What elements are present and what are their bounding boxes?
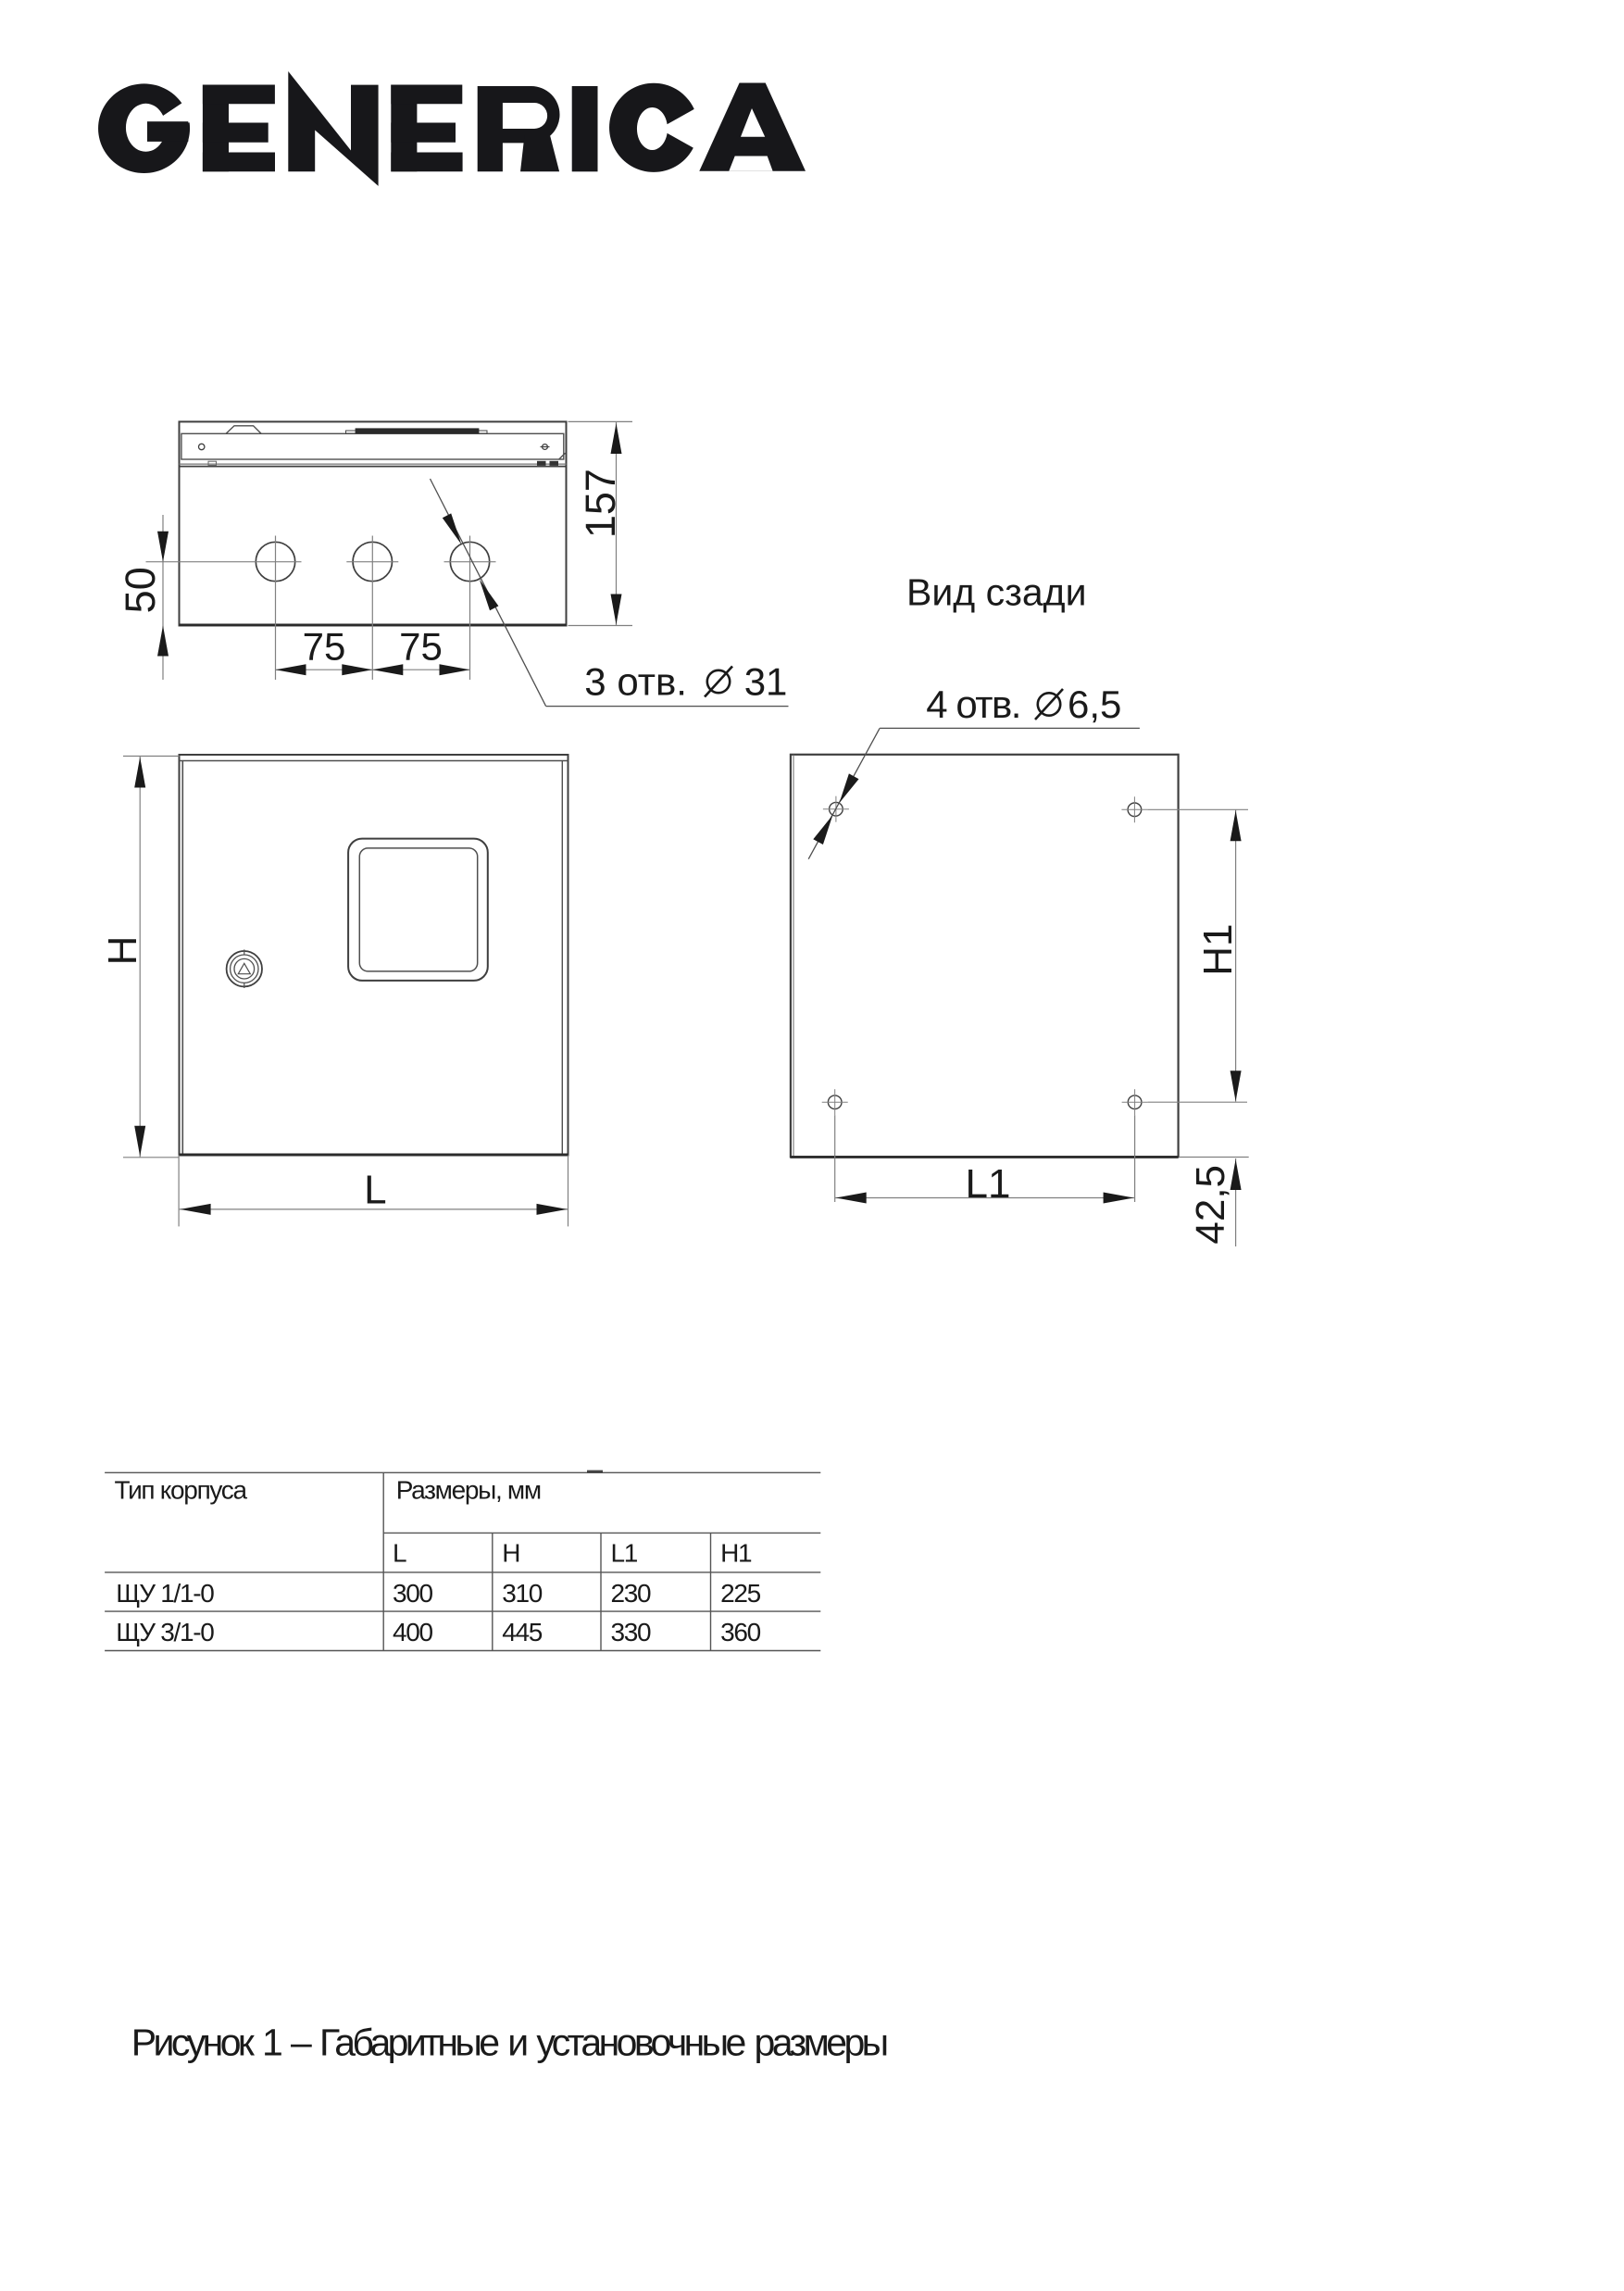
svg-text:4 отв.: 4 отв. <box>926 682 1020 726</box>
svg-text:H1: H1 <box>720 1539 752 1568</box>
svg-text:3 отв.: 3 отв. <box>584 660 687 704</box>
svg-text:6,5: 6,5 <box>1068 682 1121 726</box>
svg-text:330: 330 <box>611 1618 652 1646</box>
svg-text:L1: L1 <box>611 1539 638 1568</box>
svg-text:445: 445 <box>502 1618 543 1646</box>
svg-text:L: L <box>364 1168 386 1213</box>
svg-text:42,5: 42,5 <box>1188 1165 1233 1245</box>
svg-text:75: 75 <box>303 625 346 669</box>
svg-text:Рисунок 1 – Габаритные и устан: Рисунок 1 – Габаритные и установочные ра… <box>131 2021 887 2063</box>
svg-text:ЩУ 3/1-0: ЩУ 3/1-0 <box>116 1618 214 1646</box>
svg-text:50: 50 <box>117 567 164 613</box>
svg-text:360: 360 <box>720 1618 761 1646</box>
svg-text:75: 75 <box>399 625 443 669</box>
svg-text:310: 310 <box>502 1579 543 1608</box>
svg-text:230: 230 <box>611 1579 652 1608</box>
svg-text:L1: L1 <box>966 1161 1011 1207</box>
svg-text:H: H <box>100 936 145 966</box>
svg-text:225: 225 <box>720 1579 761 1608</box>
svg-text:Размеры, мм: Размеры, мм <box>396 1475 541 1504</box>
svg-text:H: H <box>502 1539 519 1568</box>
svg-text:H1: H1 <box>1195 923 1241 975</box>
svg-text:31: 31 <box>744 660 788 704</box>
svg-text:L: L <box>393 1539 406 1568</box>
svg-text:157: 157 <box>577 469 624 538</box>
svg-text:Тип корпуса: Тип корпуса <box>115 1475 248 1504</box>
svg-text:Вид сзади: Вид сзади <box>906 571 1087 614</box>
svg-text:300: 300 <box>393 1579 433 1608</box>
svg-text:ЩУ 1/1-0: ЩУ 1/1-0 <box>116 1579 214 1608</box>
svg-text:400: 400 <box>393 1618 433 1646</box>
